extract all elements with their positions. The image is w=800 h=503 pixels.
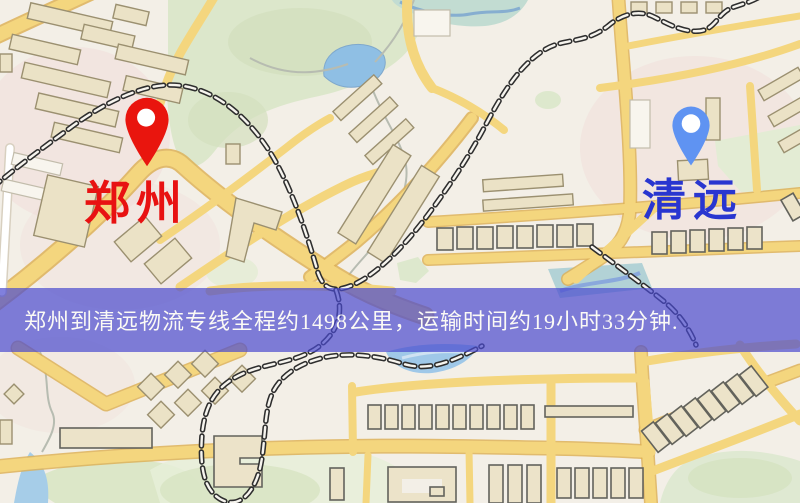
map-canvas bbox=[0, 0, 800, 503]
destination-pin-icon[interactable] bbox=[666, 105, 716, 167]
destination-city-label: 清远 bbox=[642, 179, 744, 223]
origin-pin-icon[interactable] bbox=[118, 96, 176, 168]
route-info-banner: 郑州到清远物流专线全程约1498公里，运输时间约19小时33分钟. bbox=[0, 288, 800, 352]
origin-city-label: 郑州 bbox=[84, 181, 188, 227]
map-container: 郑州 清远 郑州到清远物流专线全程约1498公里，运输时间约19小时33分钟. bbox=[0, 0, 800, 503]
route-info-text: 郑州到清远物流专线全程约1498公里，运输时间约19小时33分钟. bbox=[24, 304, 679, 336]
